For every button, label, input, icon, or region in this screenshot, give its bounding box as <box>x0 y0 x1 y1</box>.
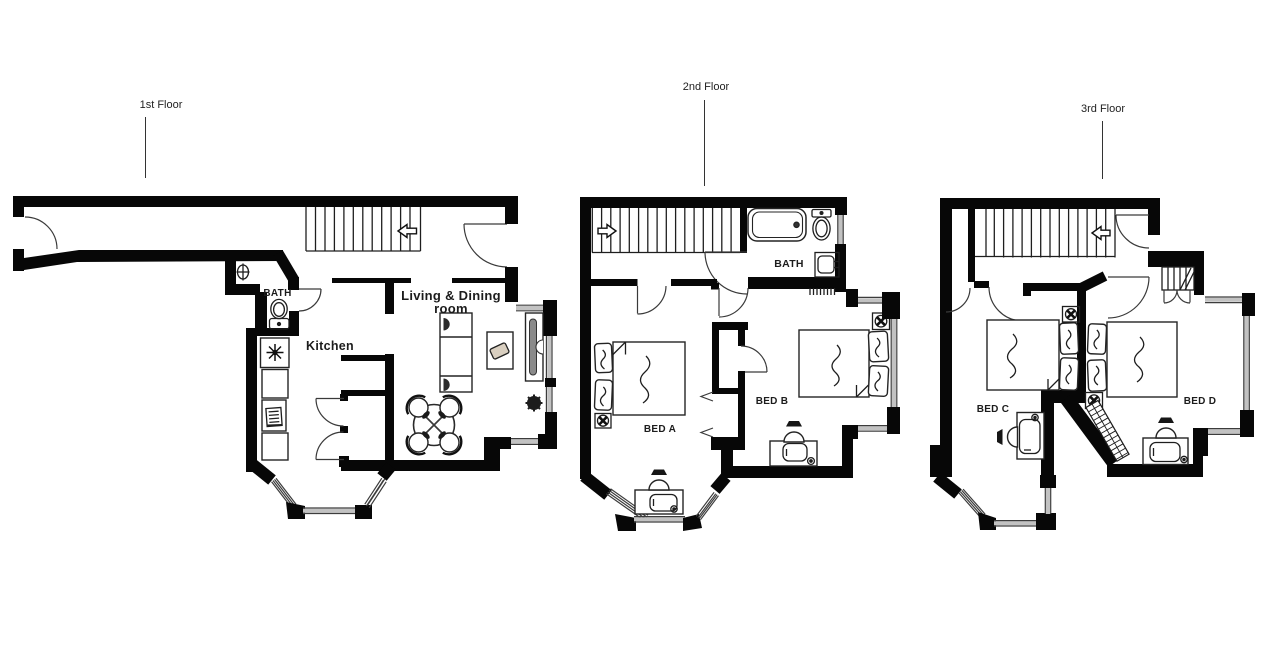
svg-text:2nd Floor: 2nd Floor <box>683 81 730 93</box>
svg-text:Kitchen: Kitchen <box>306 339 354 353</box>
svg-text:1st Floor: 1st Floor <box>140 99 183 111</box>
svg-text:BATH: BATH <box>774 258 804 270</box>
svg-text:BED A: BED A <box>644 424 676 435</box>
svg-text:BATH: BATH <box>263 288 291 299</box>
svg-text:BED B: BED B <box>756 396 789 407</box>
svg-text:BED D: BED D <box>1184 396 1217 407</box>
svg-text:room: room <box>434 301 468 316</box>
svg-text:BED C: BED C <box>977 404 1010 415</box>
svg-text:3rd Floor: 3rd Floor <box>1081 103 1125 115</box>
